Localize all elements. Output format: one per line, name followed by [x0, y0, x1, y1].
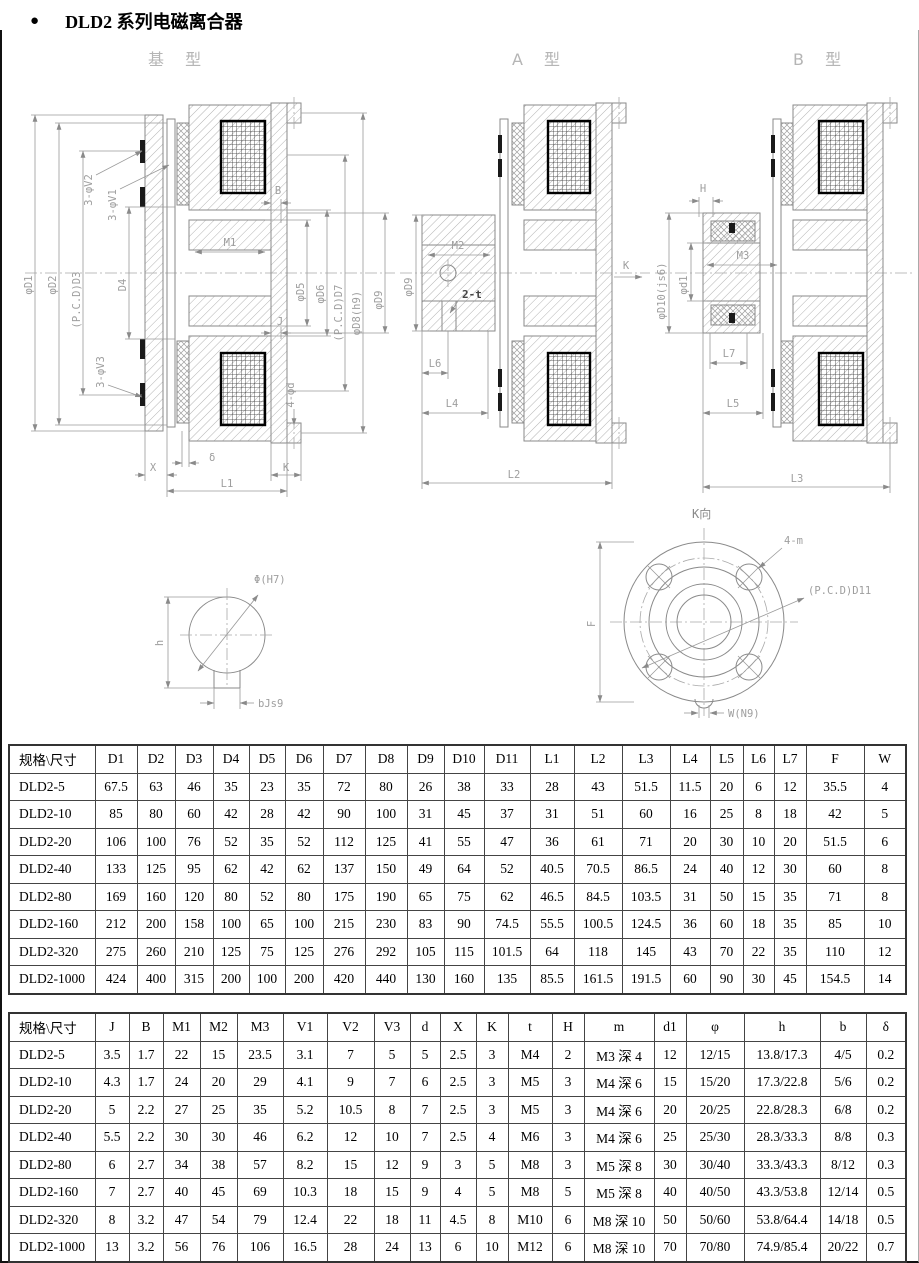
table1-value-cell: 31	[670, 883, 710, 911]
table1-value-cell: 42	[249, 856, 285, 884]
table1-row-DLD2-5: DLD2-567.563463523357280263833284351.511…	[9, 773, 906, 801]
table2-value-cell: M5	[508, 1096, 552, 1124]
table2-value-cell: 13.8/17.3	[744, 1041, 820, 1069]
table1-value-cell: 52	[213, 828, 249, 856]
table2-header-10: X	[440, 1013, 476, 1041]
table1-value-cell: 62	[484, 883, 530, 911]
table1-header-4: D4	[213, 745, 249, 773]
table2-value-cell: 8	[374, 1096, 410, 1124]
table1-value-cell: 420	[323, 966, 365, 994]
table1-value-cell: 115	[444, 938, 484, 966]
table2-value-cell: 22	[327, 1206, 374, 1234]
table1-value-cell: 154.5	[806, 966, 864, 994]
table2-value-cell: 3	[476, 1041, 508, 1069]
table1-value-cell: 160	[444, 966, 484, 994]
table1-value-cell: 16	[670, 801, 710, 829]
table1-header-10: D10	[444, 745, 484, 773]
table2-value-cell: 3	[552, 1096, 584, 1124]
table1-value-cell: 130	[407, 966, 444, 994]
table2-value-cell: 30	[163, 1124, 200, 1152]
table2-value-cell: 0.7	[866, 1234, 906, 1262]
table1-value-cell: 276	[323, 938, 365, 966]
table2-value-cell: 40/50	[686, 1179, 744, 1207]
table2-spec-cell: DLD2-320	[9, 1206, 95, 1234]
table2-value-cell: M10	[508, 1206, 552, 1234]
table1-value-cell: 70	[710, 938, 743, 966]
table2-value-cell: 20	[200, 1069, 237, 1097]
table1-value-cell: 36	[530, 828, 574, 856]
table2-row-DLD2-160: DLD2-16072.740456910.31815945M85M5 深 840…	[9, 1179, 906, 1207]
table2-value-cell: 9	[410, 1179, 440, 1207]
table1-value-cell: 118	[574, 938, 622, 966]
dim-label-M1: M1	[224, 237, 237, 249]
table2-value-cell: 3.2	[129, 1234, 163, 1262]
table2-value-cell: 17.3/22.8	[744, 1069, 820, 1097]
table1-spec-cell: DLD2-320	[9, 938, 95, 966]
table1-value-cell: 10	[743, 828, 774, 856]
table1-value-cell: 70.5	[574, 856, 622, 884]
table2-value-cell: 0.3	[866, 1124, 906, 1152]
table2-value-cell: 0.3	[866, 1151, 906, 1179]
bolt-holes	[646, 564, 762, 680]
dim-label-L7: L7	[723, 348, 736, 360]
table1-row-DLD2-40: DLD2-401331259562426213715049645240.570.…	[9, 856, 906, 884]
table1-value-cell: 90	[323, 801, 365, 829]
keyway-section-drawing: h Φ(H7) bJs9	[154, 574, 286, 710]
table1-value-cell: 85	[95, 801, 137, 829]
dim-label-pcdD3: (P.C.D)D3	[71, 272, 83, 329]
table2-value-cell: 2.5	[440, 1041, 476, 1069]
table1-value-cell: 106	[95, 828, 137, 856]
table1-value-cell: 46	[175, 773, 213, 801]
dim-label-L6: L6	[429, 358, 442, 370]
table2-header-13: H	[552, 1013, 584, 1041]
table2-value-cell: 4	[440, 1179, 476, 1207]
table2-value-cell: 38	[200, 1151, 237, 1179]
page-title-row: ● DLD2 系列电磁离合器	[30, 8, 243, 34]
table2-value-cell: M12	[508, 1234, 552, 1262]
table1-value-cell: 42	[285, 801, 323, 829]
table1-value-cell: 20	[710, 773, 743, 801]
table2-value-cell: 15	[374, 1179, 410, 1207]
coil-crosssection	[221, 121, 265, 193]
table2-value-cell: 6/8	[820, 1096, 866, 1124]
table2-value-cell: 4.5	[440, 1206, 476, 1234]
table2-header-9: d	[410, 1013, 440, 1041]
table2-value-cell: M5 深 8	[584, 1179, 654, 1207]
table1-spec-cell: DLD2-1000	[9, 966, 95, 994]
table1-header-2: D2	[137, 745, 175, 773]
table2-value-cell: 10.5	[327, 1096, 374, 1124]
dimension-table-2-wrapper: 规格\尺寸JBM1M2M3V1V2V3dXKtHmd1φhbδDLD2-53.5…	[8, 1012, 907, 1263]
table2-value-cell: M4 深 6	[584, 1096, 654, 1124]
table2-value-cell: 53.8/64.4	[744, 1206, 820, 1234]
table2-value-cell: 23.5	[237, 1041, 283, 1069]
table1-value-cell: 74.5	[484, 911, 530, 939]
table1-value-cell: 292	[365, 938, 407, 966]
table1-value-cell: 424	[95, 966, 137, 994]
table1-value-cell: 51.5	[622, 773, 670, 801]
table2-value-cell: 15/20	[686, 1069, 744, 1097]
table2-value-cell: 24	[374, 1234, 410, 1262]
dim-label-3phiV2: 3-φV2	[83, 174, 95, 206]
table2-value-cell: 35	[237, 1096, 283, 1124]
table2-value-cell: 22	[163, 1041, 200, 1069]
table2-header-7: V2	[327, 1013, 374, 1041]
table1-value-cell: 14	[864, 966, 906, 994]
table1-value-cell: 120	[175, 883, 213, 911]
dim-label-phiD1: φD1	[23, 276, 35, 295]
table1-value-cell: 64	[444, 856, 484, 884]
typeA-drawing: 2-t M2 K	[400, 97, 650, 489]
table1-header-20: W	[864, 745, 906, 773]
table2-value-cell: 0.2	[866, 1069, 906, 1097]
table2-value-cell: 8.2	[283, 1151, 327, 1179]
table1-spec-cell: DLD2-160	[9, 911, 95, 939]
table2-spec-cell: DLD2-5	[9, 1041, 95, 1069]
table2-value-cell: 43.3/53.8	[744, 1179, 820, 1207]
dim-label-pcdD11: (P.C.D)D11	[808, 585, 871, 597]
table1-row-DLD2-10: DLD2-10858060422842901003145373151601625…	[9, 801, 906, 829]
table1-value-cell: 60	[175, 801, 213, 829]
catalog-page: ● DLD2 系列电磁离合器 基 型 A 型 B 型	[0, 0, 919, 1263]
table1-value-cell: 25	[710, 801, 743, 829]
table1-value-cell: 101.5	[484, 938, 530, 966]
table2-value-cell: 47	[163, 1206, 200, 1234]
dim-label-3phiV1: 3-φV1	[107, 189, 119, 221]
table2-value-cell: 12	[374, 1151, 410, 1179]
table1-value-cell: 100	[249, 966, 285, 994]
table1-value-cell: 60	[622, 801, 670, 829]
table1-value-cell: 50	[710, 883, 743, 911]
table1-value-cell: 62	[285, 856, 323, 884]
table1-header-0: 规格\尺寸	[9, 745, 95, 773]
table1-value-cell: 80	[285, 883, 323, 911]
table2-value-cell: 106	[237, 1234, 283, 1262]
table2-value-cell: 9	[327, 1069, 374, 1097]
table1-value-cell: 100	[285, 911, 323, 939]
table1-value-cell: 62	[213, 856, 249, 884]
table1-header-15: L4	[670, 745, 710, 773]
table2-value-cell: 10	[476, 1234, 508, 1262]
table2-header-14: m	[584, 1013, 654, 1041]
table2-value-cell: 20/25	[686, 1096, 744, 1124]
table1-value-cell: 8	[743, 801, 774, 829]
table2-value-cell: 12	[327, 1124, 374, 1152]
table1-value-cell: 12	[743, 856, 774, 884]
table1-value-cell: 35	[213, 773, 249, 801]
table2-value-cell: M4 深 6	[584, 1124, 654, 1152]
table1-value-cell: 85	[806, 911, 864, 939]
table1-value-cell: 260	[137, 938, 175, 966]
page-title: DLD2 系列电磁离合器	[65, 8, 243, 34]
table2-value-cell: 33.3/43.3	[744, 1151, 820, 1179]
dim-label-delta: δ	[209, 452, 215, 464]
table1-header-12: L1	[530, 745, 574, 773]
table1-value-cell: 60	[670, 966, 710, 994]
table1-value-cell: 90	[710, 966, 743, 994]
table2-value-cell: 15	[327, 1151, 374, 1179]
table2-value-cell: 3	[552, 1151, 584, 1179]
table2-header-4: M2	[200, 1013, 237, 1041]
table1-value-cell: 200	[285, 966, 323, 994]
table1-value-cell: 61	[574, 828, 622, 856]
table1-value-cell: 12	[774, 773, 806, 801]
table1-value-cell: 400	[137, 966, 175, 994]
table2-value-cell: 4.3	[95, 1069, 129, 1097]
table2-header-15: d1	[654, 1013, 686, 1041]
table2-header-8: V3	[374, 1013, 410, 1041]
table2-row-DLD2-40: DLD2-405.52.23030466.2121072.54M63M4 深 6…	[9, 1124, 906, 1152]
table2-value-cell: 2.2	[129, 1096, 163, 1124]
table1-header-11: D11	[484, 745, 530, 773]
table1-value-cell: 200	[213, 966, 249, 994]
table2-value-cell: 79	[237, 1206, 283, 1234]
dim-label-3phiV3: 3-φV3	[95, 356, 107, 388]
table2-value-cell: 3	[552, 1069, 584, 1097]
table2-value-cell: M3 深 4	[584, 1041, 654, 1069]
table1-value-cell: 31	[530, 801, 574, 829]
view-label-kxiang: K向	[692, 506, 711, 521]
table1-value-cell: 55	[444, 828, 484, 856]
dim-label-4phid: 4-φd	[285, 382, 297, 407]
table1-value-cell: 145	[622, 938, 670, 966]
table2-value-cell: 18	[327, 1179, 374, 1207]
table1-value-cell: 18	[774, 801, 806, 829]
table1-value-cell: 42	[213, 801, 249, 829]
table1-value-cell: 86.5	[622, 856, 670, 884]
table2-value-cell: 1.7	[129, 1041, 163, 1069]
table1-header-3: D3	[175, 745, 213, 773]
table1-header-6: D6	[285, 745, 323, 773]
table2-value-cell: 15	[200, 1041, 237, 1069]
table1-value-cell: 100	[365, 801, 407, 829]
table1-value-cell: 210	[175, 938, 213, 966]
table1-value-cell: 22	[743, 938, 774, 966]
table1-row-DLD2-80: DLD2-8016916012080528017519065756246.584…	[9, 883, 906, 911]
table1-value-cell: 49	[407, 856, 444, 884]
dim-label-F: F	[586, 621, 598, 627]
table2-header-3: M1	[163, 1013, 200, 1041]
table1-value-cell: 65	[407, 883, 444, 911]
table1-value-cell: 4	[864, 773, 906, 801]
table2-spec-cell: DLD2-1000	[9, 1234, 95, 1262]
table2-value-cell: 12.4	[283, 1206, 327, 1234]
table2-row-DLD2-1000: DLD2-1000133.2567610616.5282413610M126M8…	[9, 1234, 906, 1262]
table2-value-cell: 0.2	[866, 1041, 906, 1069]
table2-value-cell: 5	[95, 1096, 129, 1124]
table1-value-cell: 38	[444, 773, 484, 801]
table2-value-cell: 7	[327, 1041, 374, 1069]
table2-row-DLD2-320: DLD2-32083.247547912.42218114.58M106M8 深…	[9, 1206, 906, 1234]
table2-row-DLD2-80: DLD2-8062.73438578.21512935M83M5 深 83030…	[9, 1151, 906, 1179]
table1-value-cell: 11.5	[670, 773, 710, 801]
table1-value-cell: 6	[743, 773, 774, 801]
table2-value-cell: 8	[476, 1206, 508, 1234]
table1-value-cell: 175	[323, 883, 365, 911]
table2-value-cell: 5	[476, 1179, 508, 1207]
table1-value-cell: 6	[864, 828, 906, 856]
table1-value-cell: 133	[95, 856, 137, 884]
table1-value-cell: 51.5	[806, 828, 864, 856]
dim-label-H: H	[700, 183, 706, 195]
table1-value-cell: 45	[774, 966, 806, 994]
table1-value-cell: 65	[249, 911, 285, 939]
table2-value-cell: 5	[410, 1041, 440, 1069]
table2-value-cell: 6	[552, 1206, 584, 1234]
table2-value-cell: 13	[410, 1234, 440, 1262]
table1-value-cell: 35	[249, 828, 285, 856]
table2-value-cell: 2.5	[440, 1124, 476, 1152]
table2-value-cell: 27	[163, 1096, 200, 1124]
table2-value-cell: M8	[508, 1179, 552, 1207]
table1-value-cell: 90	[444, 911, 484, 939]
base-type-drawing: φD1 φD2 (P.C.D)D3 D4 3-φV2 3-φV1 3-φV3	[23, 97, 395, 497]
table2-value-cell: 3	[476, 1069, 508, 1097]
table2-value-cell: 46	[237, 1124, 283, 1152]
table1-value-cell: 28	[530, 773, 574, 801]
table2-value-cell: 5	[476, 1151, 508, 1179]
table1-value-cell: 150	[365, 856, 407, 884]
dim-label-L1: L1	[221, 478, 234, 490]
dim-label-L4: L4	[446, 398, 459, 410]
table1-value-cell: 71	[806, 883, 864, 911]
table2-value-cell: M5	[508, 1069, 552, 1097]
table1-value-cell: 315	[175, 966, 213, 994]
table1-value-cell: 41	[407, 828, 444, 856]
table2-value-cell: 70/80	[686, 1234, 744, 1262]
table1-spec-cell: DLD2-80	[9, 883, 95, 911]
table1-value-cell: 52	[249, 883, 285, 911]
coil-crosssection	[221, 353, 265, 425]
table2-value-cell: 6	[552, 1234, 584, 1262]
dim-label-phiH7: Φ(H7)	[254, 574, 286, 586]
table1-value-cell: 20	[774, 828, 806, 856]
table2-value-cell: 76	[200, 1234, 237, 1262]
dim-label-phiD2: φD2	[47, 276, 59, 295]
table2-header-19: δ	[866, 1013, 906, 1041]
table2-spec-cell: DLD2-160	[9, 1179, 95, 1207]
table1-value-cell: 161.5	[574, 966, 622, 994]
table1-value-cell: 5	[864, 801, 906, 829]
table2-value-cell: 6	[410, 1069, 440, 1097]
table1-header-18: L7	[774, 745, 806, 773]
table1-value-cell: 23	[249, 773, 285, 801]
table1-value-cell: 33	[484, 773, 530, 801]
table1-value-cell: 35	[774, 911, 806, 939]
table2-value-cell: 0.2	[866, 1096, 906, 1124]
dim-label-phiD8: φD8(h9)	[351, 291, 363, 335]
dimension-table-1: 规格\尺寸D1D2D3D4D5D6D7D8D9D10D11L1L2L3L4L5L…	[8, 744, 907, 995]
table2-header-18: b	[820, 1013, 866, 1041]
table1-value-cell: 158	[175, 911, 213, 939]
table1-value-cell: 135	[484, 966, 530, 994]
table2-value-cell: 50	[654, 1206, 686, 1234]
table1-value-cell: 230	[365, 911, 407, 939]
table2-value-cell: 4/5	[820, 1041, 866, 1069]
table1-value-cell: 36	[670, 911, 710, 939]
table1-value-cell: 52	[285, 828, 323, 856]
table1-value-cell: 75	[444, 883, 484, 911]
table2-header-row: 规格\尺寸JBM1M2M3V1V2V3dXKtHmd1φhbδ	[9, 1013, 906, 1041]
table1-value-cell: 63	[137, 773, 175, 801]
table2-value-cell: 0.5	[866, 1179, 906, 1207]
table2-value-cell: M6	[508, 1124, 552, 1152]
table2-header-11: K	[476, 1013, 508, 1041]
table1-value-cell: 46.5	[530, 883, 574, 911]
table2-value-cell: 3.2	[129, 1206, 163, 1234]
table2-value-cell: 20/22	[820, 1234, 866, 1262]
table2-value-cell: 5/6	[820, 1069, 866, 1097]
table1-value-cell: 35	[774, 938, 806, 966]
table1-value-cell: 125	[365, 828, 407, 856]
table2-value-cell: 3	[552, 1124, 584, 1152]
table1-value-cell: 100	[213, 911, 249, 939]
dimension-table-2: 规格\尺寸JBM1M2M3V1V2V3dXKtHmd1φhbδDLD2-53.5…	[8, 1012, 907, 1263]
table1-value-cell: 85.5	[530, 966, 574, 994]
table2-value-cell: M8	[508, 1151, 552, 1179]
dim-label-4m: 4-m	[784, 535, 803, 547]
table1-value-cell: 42	[806, 801, 864, 829]
table2-value-cell: 2.7	[129, 1179, 163, 1207]
table1-value-cell: 95	[175, 856, 213, 884]
table2-value-cell: 28.3/33.3	[744, 1124, 820, 1152]
table1-spec-cell: DLD2-40	[9, 856, 95, 884]
table1-value-cell: 55.5	[530, 911, 574, 939]
table2-value-cell: 3	[440, 1151, 476, 1179]
table1-row-DLD2-20: DLD2-20106100765235521121254155473661712…	[9, 828, 906, 856]
table1-value-cell: 84.5	[574, 883, 622, 911]
table1-value-cell: 137	[323, 856, 365, 884]
table2-value-cell: 6.2	[283, 1124, 327, 1152]
table2-value-cell: 57	[237, 1151, 283, 1179]
table2-value-cell: 3.1	[283, 1041, 327, 1069]
table1-value-cell: 8	[864, 856, 906, 884]
table1-value-cell: 40	[710, 856, 743, 884]
table2-header-5: M3	[237, 1013, 283, 1041]
table1-value-cell: 100.5	[574, 911, 622, 939]
table2-value-cell: 45	[200, 1179, 237, 1207]
table1-value-cell: 60	[710, 911, 743, 939]
dim-label-L5: L5	[727, 398, 740, 410]
table2-value-cell: 3	[476, 1096, 508, 1124]
table1-row-DLD2-160: DLD2-16021220015810065100215230839074.55…	[9, 911, 906, 939]
table1-value-cell: 47	[484, 828, 530, 856]
table2-value-cell: 30/40	[686, 1151, 744, 1179]
table2-value-cell: 8	[95, 1206, 129, 1234]
table1-value-cell: 72	[323, 773, 365, 801]
dimension-table-1-wrapper: 规格\尺寸D1D2D3D4D5D6D7D8D9D10D11L1L2L3L4L5L…	[8, 744, 907, 995]
table1-value-cell: 40.5	[530, 856, 574, 884]
typeB-drawing: H φD10(js6) φd1	[655, 97, 915, 493]
dim-label-K-base: K	[283, 462, 290, 474]
table2-value-cell: 70	[654, 1234, 686, 1262]
table2-value-cell: 18	[374, 1206, 410, 1234]
table1-row-DLD2-1000: DLD2-10004244003152001002004204401301601…	[9, 966, 906, 994]
table1-value-cell: 37	[484, 801, 530, 829]
table2-spec-cell: DLD2-20	[9, 1096, 95, 1124]
table1-value-cell: 105	[407, 938, 444, 966]
table2-value-cell: M4	[508, 1041, 552, 1069]
table1-value-cell: 71	[622, 828, 670, 856]
table1-value-cell: 10	[864, 911, 906, 939]
table1-value-cell: 52	[484, 856, 530, 884]
table1-value-cell: 160	[137, 883, 175, 911]
table1-value-cell: 20	[670, 828, 710, 856]
table1-value-cell: 64	[530, 938, 574, 966]
table1-value-cell: 212	[95, 911, 137, 939]
dim-label-phiD6: φD6	[315, 285, 327, 304]
